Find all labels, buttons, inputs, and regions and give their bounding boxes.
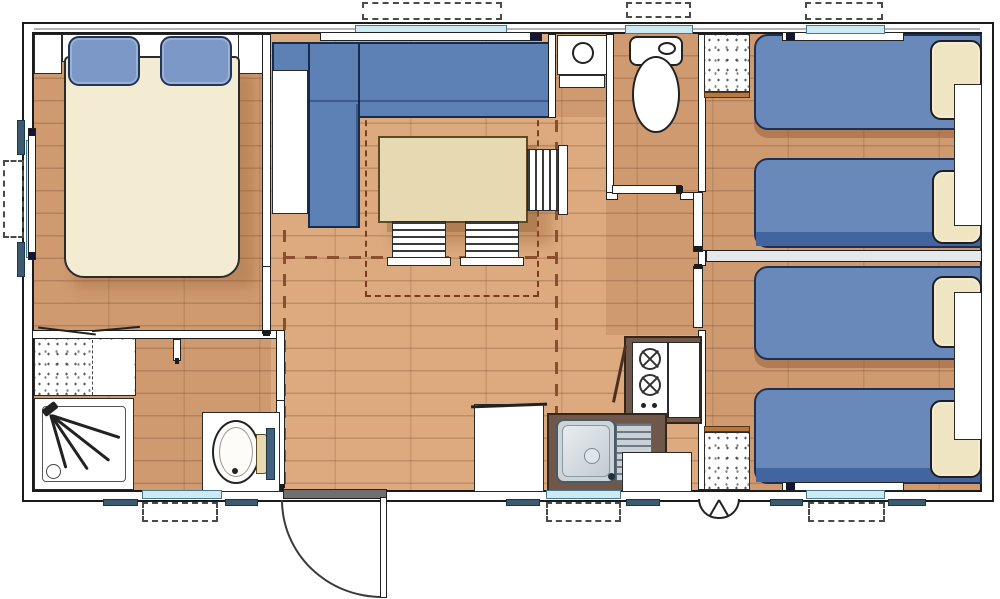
wc-door	[612, 185, 682, 194]
shutter-bottom-6	[888, 499, 926, 506]
dining-chair-2-back	[460, 257, 524, 266]
bedroom-divider-wall	[706, 250, 982, 262]
bedroom1-door	[693, 192, 703, 252]
entrance-sill	[283, 489, 387, 499]
shutter-left-2	[17, 242, 25, 277]
kitchen-tall-cabinet	[668, 342, 700, 418]
window-bedroom1-top	[806, 25, 885, 34]
shower-drain	[46, 464, 61, 479]
projection-left-master	[3, 160, 24, 238]
dining-chair-3-back	[558, 145, 568, 215]
bedroom2-door-hinge	[694, 264, 702, 269]
shutter-bottom-2	[225, 499, 258, 506]
entrance-door	[380, 497, 387, 598]
blind-bar-master-cap-top	[29, 129, 35, 136]
shutter-bottom-5	[770, 499, 803, 506]
window-shower-bottom	[142, 490, 222, 499]
bedroom1-shelf-bar-cap	[786, 33, 795, 40]
master-living-wall	[262, 34, 271, 268]
shutter-bottom-1	[103, 499, 138, 506]
sofa-arm-left	[308, 42, 360, 228]
shutter-bottom-3	[506, 499, 540, 506]
window-wc-top	[625, 25, 693, 34]
master-pillow-right	[160, 36, 232, 86]
dining-chair-2-seat	[465, 221, 519, 259]
hob-burner-1	[639, 348, 661, 370]
bedroom2-shelf-bar-cap	[786, 483, 795, 490]
toilet-flush-button	[658, 42, 676, 55]
shutter-bottom-4	[626, 499, 660, 506]
washbasin-faucet-dot	[232, 468, 238, 474]
hob-knob-1	[641, 403, 646, 408]
sofa-side-cabinet	[272, 70, 308, 214]
dining-chair-1-back	[387, 257, 451, 266]
bedroom1-wardrobe	[704, 34, 750, 92]
projection-bottom-kitchen	[546, 502, 621, 522]
sofa-seam-vertical	[356, 104, 358, 226]
sofa-seam-horizontal	[275, 100, 549, 102]
shower-room-wardrobe-right-half	[92, 340, 134, 395]
hob-knob-2	[652, 403, 657, 408]
blind-bar-living	[320, 32, 542, 41]
master-double-bed	[64, 56, 240, 278]
bedroom2-door	[693, 266, 703, 328]
dining-chair-1-seat	[392, 221, 446, 259]
kitchen-faucet-dot	[608, 473, 615, 480]
shutter-left-1	[17, 120, 25, 155]
bathroom-mirror	[266, 428, 275, 480]
projection-top-wc	[626, 2, 691, 18]
bedroom1-door-hinge	[694, 246, 702, 251]
toilet-bowl	[632, 56, 680, 133]
blind-bar-master-cap-bottom	[29, 252, 35, 259]
hob-burner-2	[639, 374, 661, 396]
wc-door-hinge	[676, 186, 683, 193]
projection-top-living	[362, 2, 502, 20]
master-bedroom-door	[262, 266, 271, 334]
projection-top-bedroom1	[805, 2, 883, 20]
window-kitchen-bottom	[546, 490, 621, 499]
entrance-door-swing-arc	[281, 500, 382, 598]
shower-room-post-tip	[175, 358, 179, 364]
projection-bottom-shower	[142, 502, 218, 522]
master-bedroom-door-hinge	[263, 330, 270, 336]
water-heater-dial	[572, 42, 594, 64]
bedroom1-nightstand	[954, 84, 982, 226]
alcove-wall	[548, 34, 556, 118]
blind-bar-master-left	[28, 128, 36, 260]
kitchen-freezer-cabinet	[474, 404, 544, 492]
dining-table	[378, 136, 528, 223]
bedroom2-nightstand	[954, 292, 982, 440]
master-wardrobe-left	[34, 34, 62, 74]
bedroom1-wardrobe-shelf	[704, 92, 750, 98]
shower-room-wall-right	[276, 330, 285, 402]
projection-bottom-bedroom2	[808, 502, 885, 522]
kitchen-sink-drain	[584, 448, 600, 464]
master-pillow-left	[68, 36, 140, 86]
window-bedroom2-bottom	[806, 490, 885, 499]
bedroom2-wardrobe	[704, 432, 750, 490]
floor-plan	[0, 0, 1000, 599]
alcove-shelf	[559, 75, 605, 88]
blind-bar-living-cap	[530, 33, 541, 40]
wc-wall-left	[606, 34, 614, 200]
kitchen-low-cabinet	[622, 452, 692, 492]
